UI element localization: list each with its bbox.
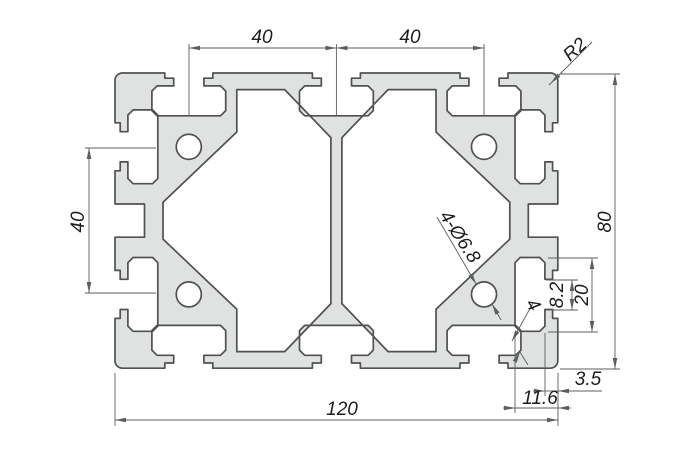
dim-hole-callout: 4-Ø6.8 xyxy=(435,207,484,268)
dim-top-pitch-right: 40 xyxy=(399,27,421,48)
dim-wall-thickness: 4 xyxy=(521,295,544,315)
screw-hole xyxy=(471,134,496,159)
drawing-canvas: 40 40 40 120 80 R2 4-Ø6.8 4 8.2 20 3.5 1… xyxy=(0,0,694,450)
dim-top-pitch-left: 40 xyxy=(251,27,273,48)
dim-slot-opening: 8.2 xyxy=(547,281,568,308)
screw-hole xyxy=(176,134,201,159)
dim-slot-lip-depth: 3.5 xyxy=(575,369,602,390)
dim-corner-radius: R2 xyxy=(559,34,591,66)
screw-hole xyxy=(176,282,201,307)
dim-slot-depth: 11.6 xyxy=(522,388,558,409)
dim-overall-height: 80 xyxy=(595,211,616,233)
dim-slot-inner-width: 20 xyxy=(572,284,593,307)
profile-cross-section xyxy=(115,73,558,368)
screw-hole xyxy=(471,282,496,307)
dim-side-pitch: 40 xyxy=(68,211,89,233)
dim-overall-width: 120 xyxy=(326,399,358,420)
technical-drawing: 40 40 40 120 80 R2 4-Ø6.8 4 8.2 20 3.5 1… xyxy=(0,0,694,450)
